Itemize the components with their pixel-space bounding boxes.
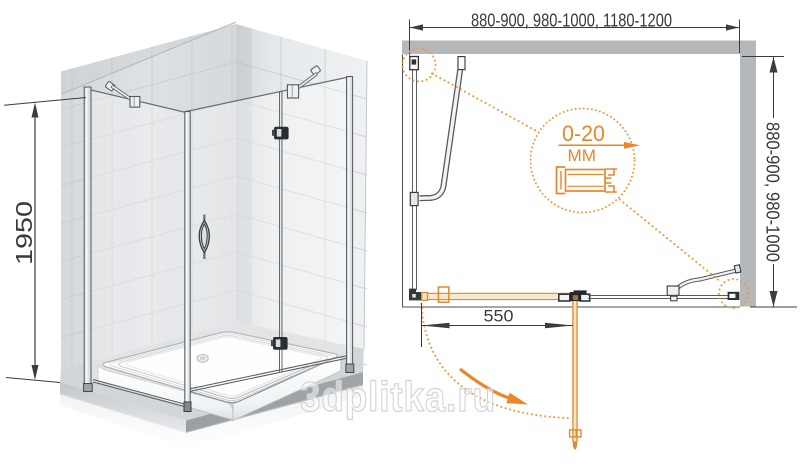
- svg-text:550: 550: [484, 307, 514, 326]
- svg-text:880-900, 980-1000: 880-900, 980-1000: [763, 122, 784, 262]
- svg-text:0-20: 0-20: [562, 121, 605, 146]
- svg-text:3dplitka.ru: 3dplitka.ru: [300, 373, 496, 420]
- svg-text:ММ: ММ: [568, 147, 597, 165]
- svg-text:1950: 1950: [11, 201, 37, 265]
- svg-text:880-900, 980-1000, 1180-1200: 880-900, 980-1000, 1180-1200: [471, 10, 672, 31]
